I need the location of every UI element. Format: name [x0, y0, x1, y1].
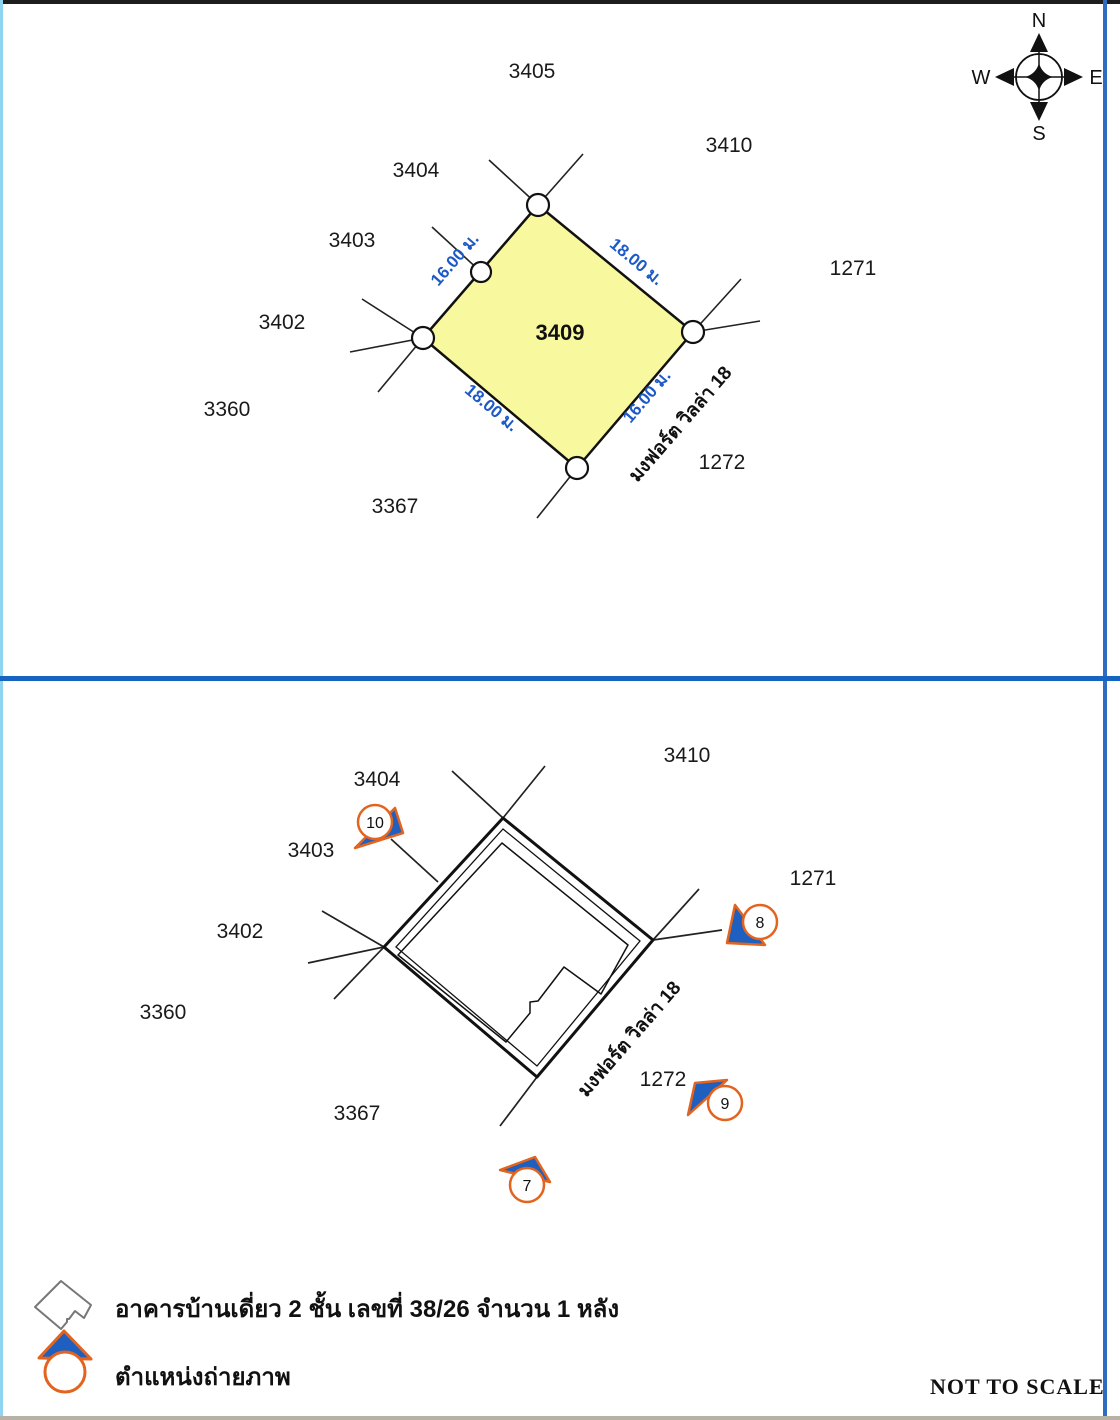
camera-marker-7: 7 [500, 1157, 550, 1202]
compass-s: S [1032, 123, 1045, 145]
parcel-id-label: 3409 [536, 320, 585, 345]
parcel-label-3360: 3360 [204, 398, 251, 421]
parcel-label-3360-b: 3360 [140, 1001, 187, 1024]
parcel-label-3404: 3404 [393, 159, 440, 182]
parcel-label-1271: 1271 [830, 257, 877, 280]
parcel-label-3410: 3410 [706, 134, 753, 157]
parcel-label-1272: 1272 [699, 451, 746, 474]
parcel-label-1271-b: 1271 [790, 867, 837, 890]
scale-note: NOT TO SCALE [930, 1374, 1105, 1400]
compass-arrow-north [1030, 33, 1048, 52]
camera-marker-9: 9 [688, 1080, 742, 1120]
compass-star [1025, 63, 1053, 91]
camera-marker-number: 9 [721, 1096, 730, 1113]
parcel-label-3410-b: 3410 [664, 744, 711, 767]
parcel-label-3402-b: 3402 [217, 920, 264, 943]
compass-arrow-east [1064, 68, 1083, 86]
parcel-label-3367: 3367 [372, 495, 419, 518]
camera-marker-10: 10 [355, 805, 403, 848]
legend-camera-icon [33, 1326, 99, 1398]
parcel-map-panel: 16.00 ม. 18.00 ม. 18.00 ม. 16.00 ม. 3409… [0, 0, 1120, 676]
parcel-label-3405: 3405 [509, 60, 556, 83]
parcel-label-3403: 3403 [329, 229, 376, 252]
parcel-label-3403-b: 3403 [288, 839, 335, 862]
camera-marker-number: 8 [756, 915, 765, 932]
camera-marker-8: 8 [727, 905, 777, 945]
parcel-label-1272-b: 1272 [640, 1068, 687, 1091]
compass-arrow-west [995, 68, 1014, 86]
camera-marker-number: 7 [523, 1178, 532, 1195]
parcel-label-3402: 3402 [259, 311, 306, 334]
survey-sheet: 16.00 ม. 18.00 ม. 18.00 ม. 16.00 ม. 3409… [0, 0, 1120, 1420]
legend-camera-label: ตำแหน่งถ่ายภาพ [115, 1357, 291, 1396]
compass-e: E [1089, 67, 1102, 89]
compass-rose: N S W E [972, 10, 1103, 145]
compass-n: N [1032, 10, 1046, 32]
compass-w: W [972, 67, 991, 89]
compass-arrow-south [1030, 102, 1048, 121]
legend-building-label: อาคารบ้านเดี่ยว 2 ชั้น เลขที่ 38/26 จำนว… [115, 1289, 619, 1328]
camera-marker-number: 10 [366, 815, 384, 832]
parcel-label-3367-b: 3367 [334, 1102, 381, 1125]
parcel-label-3404-b: 3404 [354, 768, 401, 791]
